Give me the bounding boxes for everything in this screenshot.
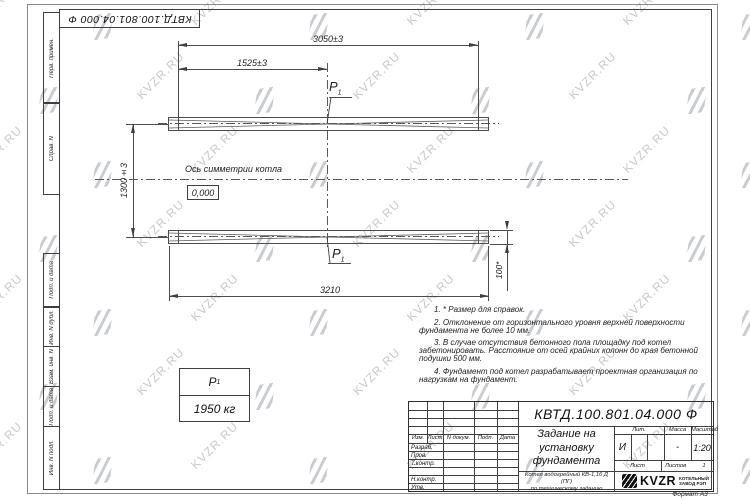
- dimension-line: [178, 69, 327, 70]
- extension-line: [169, 246, 170, 301]
- line: [661, 460, 662, 471]
- extension-line: [488, 246, 489, 301]
- row-prov: Пров.: [411, 453, 443, 459]
- margin-cell-vzam-inv: Взам. инв. N: [43, 346, 60, 387]
- line: [647, 434, 648, 460]
- line: [409, 459, 518, 460]
- col-podp: Подп.: [474, 435, 497, 441]
- line: [409, 475, 518, 476]
- sheets-label: Листов: [665, 463, 693, 469]
- document-designation: КВТД.100.801.04.000 Ф: [519, 402, 713, 426]
- row-utv: Утв.: [411, 485, 443, 491]
- load-index: 1: [217, 379, 221, 386]
- margin-label: Подп. и дата: [49, 261, 55, 299]
- note-item: 1. * Размер для справок.: [419, 306, 703, 314]
- lit-value: И: [614, 442, 631, 453]
- arrow-icon: [469, 43, 478, 47]
- dim-half-top: 1525±3: [212, 58, 292, 68]
- extension-line: [126, 237, 168, 238]
- mass-label: Масса: [664, 427, 691, 433]
- load-point-index: 1: [341, 257, 345, 264]
- line: [497, 402, 498, 491]
- dim-total-top: 3050±3: [288, 34, 368, 44]
- margin-label: Взам. инв. N: [49, 349, 55, 384]
- margin-cell-perv-primen: Перв. примен.: [43, 12, 60, 103]
- arrow-icon: [318, 67, 327, 71]
- load-table-header: P1: [180, 369, 249, 396]
- row-razrab: Разраб.: [411, 445, 443, 451]
- arrow-icon: [505, 221, 509, 230]
- margin-cell-podp-data-1: Подп. и дата: [43, 253, 60, 307]
- row-tkontr: Т.контр.: [411, 461, 443, 467]
- load-point-letter: P: [329, 79, 338, 94]
- title-block: Изм. Лист N докум. Подп. Дата Разраб. Пр…: [408, 401, 714, 492]
- line: [443, 402, 444, 491]
- load-point-index: 1: [338, 90, 342, 97]
- load-point-letter: P: [332, 246, 341, 261]
- technical-notes: 1. * Размер для справок. 2. Отклонение о…: [419, 306, 703, 388]
- col-list: Лист: [427, 435, 443, 441]
- lit-label: Лит.: [614, 427, 664, 433]
- line: [614, 460, 713, 461]
- arrow-icon: [480, 294, 489, 298]
- leader-shelf: [329, 97, 352, 98]
- product-name: Котел водогрейный КВ-1,16 Д (ПГ) по техн…: [519, 472, 614, 490]
- scale-label: Масштаб: [691, 427, 713, 433]
- dim-between-axes: 1300±3: [119, 150, 129, 210]
- margin-label: Перв. примен.: [49, 38, 55, 78]
- sheets-value: 1: [699, 463, 709, 469]
- product-line: Котел водогрейный КВ-1,16 Д (ПГ): [519, 472, 614, 486]
- load-letter: P: [209, 375, 217, 389]
- line: [614, 434, 713, 435]
- arrow-icon: [178, 67, 187, 71]
- line: [409, 451, 518, 452]
- rotated-designation-text: КВТД.100.801.04.000 Ф: [68, 13, 192, 25]
- dimension-line: [133, 124, 134, 237]
- col-ndoc: N докум.: [443, 435, 474, 441]
- rotated-designation-stamp: КВТД.100.801.04.000 Ф: [59, 9, 200, 28]
- dim-profile-height: 100*: [494, 252, 504, 288]
- scale-value: 1:20: [691, 443, 713, 453]
- arrow-icon: [131, 124, 135, 133]
- load-point-label-top: P1: [329, 79, 342, 97]
- margin-cell-sprav-n: Справ. N: [43, 103, 60, 195]
- load-table-value: 1950 кг: [180, 396, 249, 422]
- arrow-icon: [505, 244, 509, 253]
- mass-value: -: [664, 442, 691, 453]
- arrow-icon: [169, 294, 178, 298]
- caption-line: ЗАВОД РЭП: [679, 481, 709, 486]
- arrow-icon: [131, 228, 135, 237]
- leader-line: [327, 97, 331, 124]
- kvzr-logo-text: KVZR: [640, 474, 676, 488]
- col-izm: Изм.: [409, 435, 427, 441]
- line: [409, 410, 518, 411]
- line: [409, 483, 518, 484]
- extension-line: [490, 244, 513, 245]
- line: [409, 467, 518, 468]
- dimension-line: [169, 296, 489, 297]
- arrow-icon: [178, 43, 187, 47]
- load-table: P1 1950 кг: [179, 368, 250, 422]
- extension-line: [478, 41, 479, 131]
- line: [409, 443, 518, 444]
- note-item: 2. Отклонение от горизонтального уровня …: [419, 319, 703, 335]
- leader-line: [327, 237, 330, 263]
- dimension-line: [178, 45, 478, 46]
- margin-cell-inv-dubl: Инв. N дубл.: [43, 307, 60, 347]
- extension-line: [178, 41, 179, 131]
- load-point-label-bottom: P1: [332, 246, 345, 264]
- note-item: 3. В случае отсутствия бетонного пола пл…: [419, 339, 703, 362]
- drawing-sheet: KVZR.RUKVZR.RUKVZR.RUKVZR.RUKVZR.RUKVZR.…: [0, 0, 750, 500]
- level-mark-box: 0,000: [187, 185, 219, 200]
- note-item: 4. Фундамент под котел разрабатывает про…: [419, 368, 703, 384]
- row-nkontr: Н.контр.: [411, 477, 443, 483]
- line: [409, 418, 518, 419]
- col-data: Дата: [497, 435, 518, 441]
- product-line: по техническому заданию: [519, 486, 614, 493]
- line: [631, 434, 632, 460]
- extension-line: [490, 230, 513, 231]
- margin-label: Инв. N подл.: [49, 440, 55, 475]
- format-note: Формат А3: [655, 491, 725, 498]
- level-mark-value: 0,000: [192, 188, 215, 198]
- company-logo: KVZR КОТЕЛЬНЫЙ ЗАВОД РЭП: [615, 472, 712, 490]
- margin-label: Подп. и дата: [49, 388, 55, 426]
- margin-cell-inv-podl: Инв. N подл.: [43, 426, 60, 490]
- document-title: Задание на установку фундамента: [519, 428, 614, 471]
- margin-cell-podp-data-2: Подп. и дата: [43, 386, 60, 427]
- kvzr-logo-icon: [622, 474, 637, 488]
- kvzr-logo-caption: КОТЕЛЬНЫЙ ЗАВОД РЭП: [679, 476, 709, 486]
- margin-label: Инв. N дубл.: [49, 310, 55, 345]
- dim-total-bottom: 3210: [290, 285, 370, 295]
- line: [474, 402, 475, 491]
- dimension-line: [507, 230, 508, 291]
- axis-label: Ось симметрии котла: [185, 164, 282, 174]
- margin-label: Справ. N: [49, 136, 55, 161]
- sheet-label: Лист: [614, 463, 661, 469]
